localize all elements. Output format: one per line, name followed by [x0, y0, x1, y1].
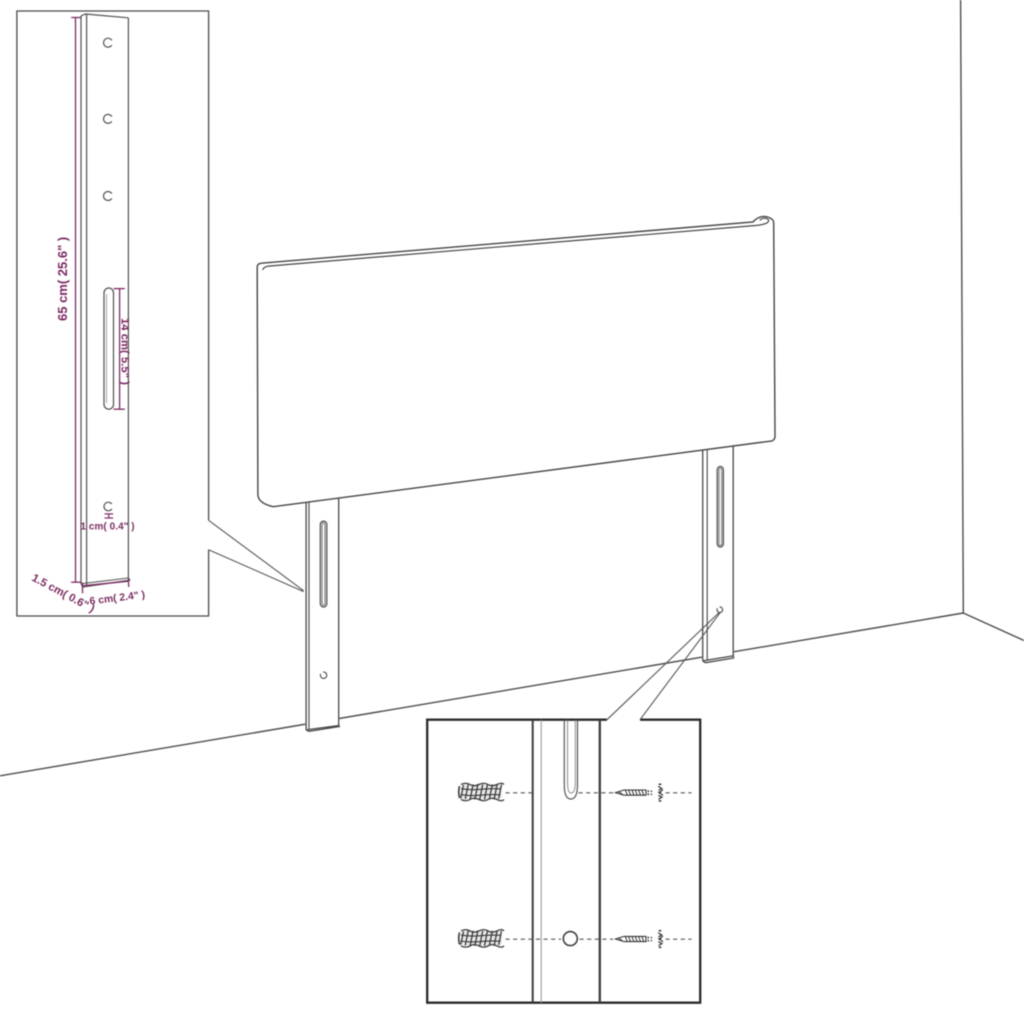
- svg-text:14 cm( 5.5" ): 14 cm( 5.5" ): [118, 318, 130, 385]
- svg-text:65 cm( 25.6" ): 65 cm( 25.6" ): [55, 237, 70, 321]
- svg-text:1 cm( 0.4" ): 1 cm( 0.4" ): [81, 522, 135, 533]
- svg-text:6 cm( 2.4" ): 6 cm( 2.4" ): [89, 590, 146, 608]
